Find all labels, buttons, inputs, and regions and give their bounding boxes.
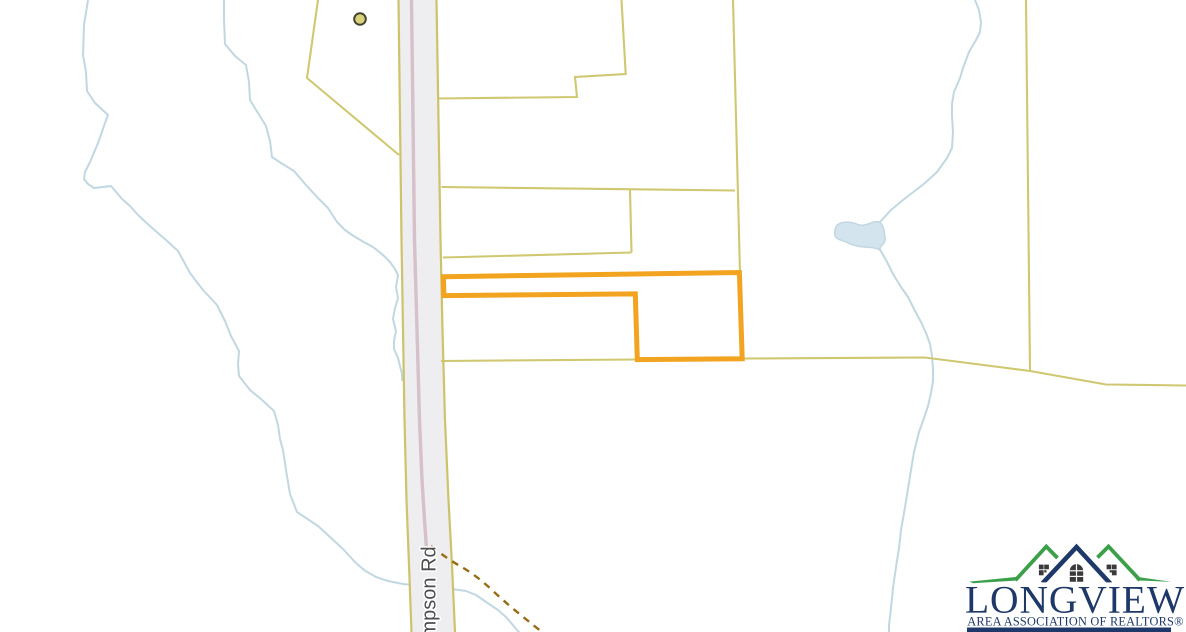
svg-text:mpson Rd: mpson Rd [419,546,441,632]
svg-text:AREA ASSOCIATION OF REALTORS®: AREA ASSOCIATION OF REALTORS® [967,615,1183,629]
